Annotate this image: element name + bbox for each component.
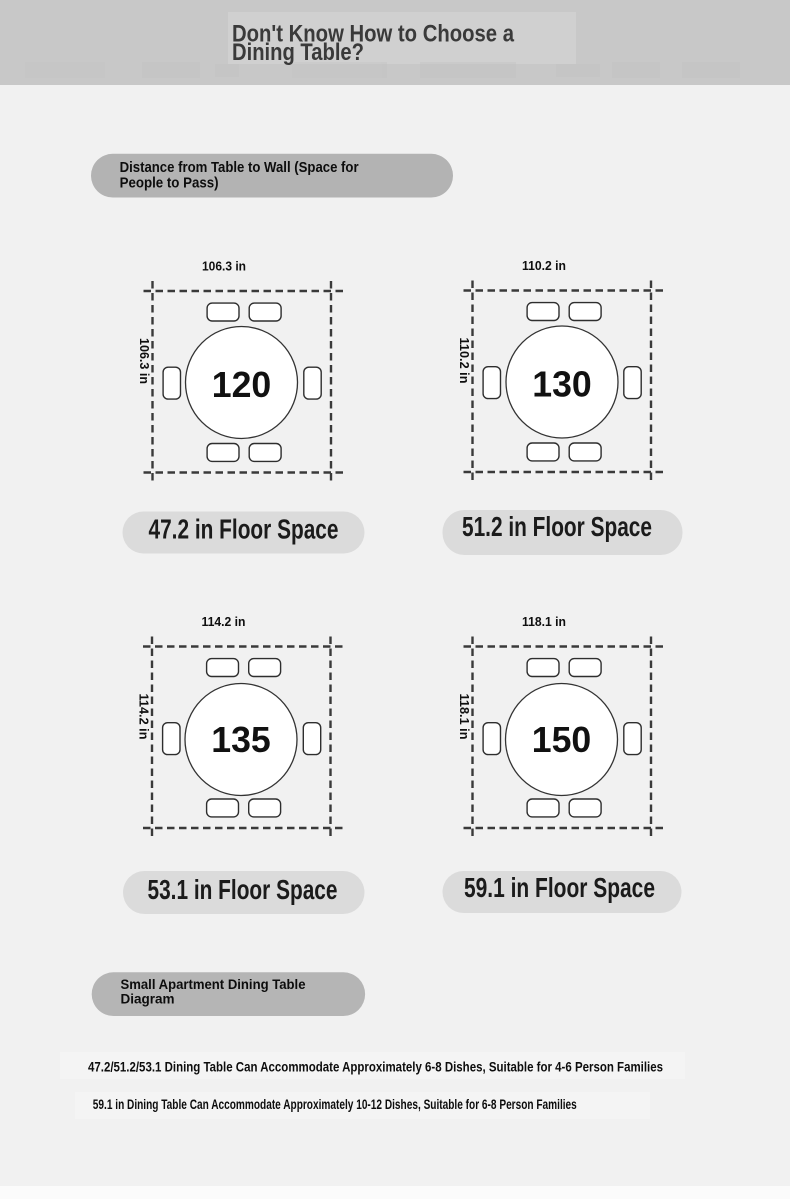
svg-text:118.1 in: 118.1 in xyxy=(457,694,472,740)
svg-text:110.2 in: 110.2 in xyxy=(522,258,566,273)
svg-text:Diagram: Diagram xyxy=(121,990,175,1006)
svg-text:47.2/51.2/53.1 Dining Table Ca: 47.2/51.2/53.1 Dining Table Can Accommod… xyxy=(88,1059,663,1075)
svg-text:53.1 in Floor Space: 53.1 in Floor Space xyxy=(148,874,338,905)
svg-text:110.2 in: 110.2 in xyxy=(457,338,472,384)
svg-text:Dining Table?: Dining Table? xyxy=(232,39,364,66)
svg-text:135: 135 xyxy=(211,719,271,760)
svg-text:People to Pass): People to Pass) xyxy=(120,174,219,191)
svg-text:114.2 in: 114.2 in xyxy=(202,614,246,629)
svg-text:51.2 in Floor Space: 51.2 in Floor Space xyxy=(462,511,652,542)
svg-text:130: 130 xyxy=(532,364,592,405)
svg-text:106.3 in: 106.3 in xyxy=(202,259,246,274)
svg-text:59.1 in Dining Table Can Accom: 59.1 in Dining Table Can Accommodate App… xyxy=(93,1096,577,1112)
svg-text:59.1 in Floor Space: 59.1 in Floor Space xyxy=(464,872,655,903)
svg-text:118.1 in: 118.1 in xyxy=(522,614,566,629)
svg-text:120: 120 xyxy=(212,364,272,405)
svg-text:47.2 in Floor Space: 47.2 in Floor Space xyxy=(149,514,339,545)
svg-text:150: 150 xyxy=(532,719,592,760)
svg-text:114.2 in: 114.2 in xyxy=(137,694,152,740)
svg-text:106.3 in: 106.3 in xyxy=(137,338,152,384)
